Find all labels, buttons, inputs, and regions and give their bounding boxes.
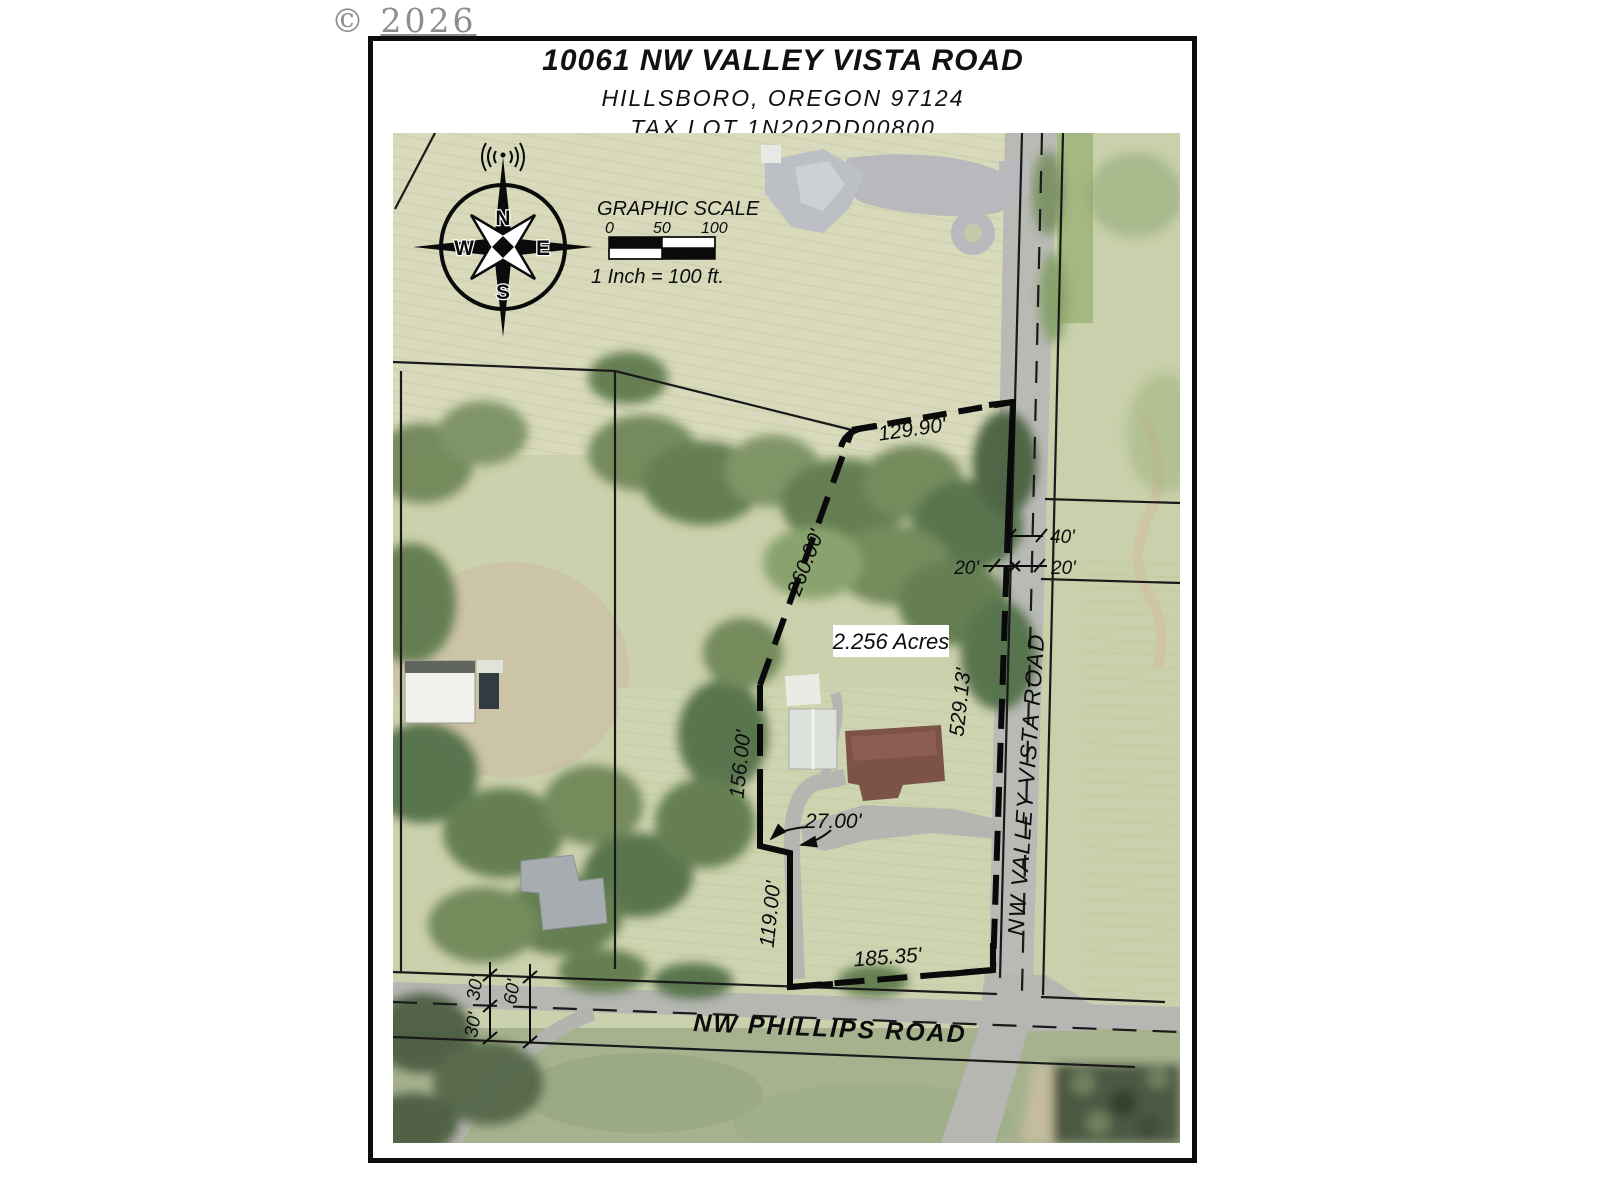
scale-bar-icon <box>609 237 715 259</box>
scale-tick-100: 100 <box>701 220 728 237</box>
copyright-watermark: © 2026 <box>331 1 476 40</box>
property-address: 10061 NW VALLEY VISTA ROAD <box>373 44 1193 78</box>
compass-west-label: W <box>454 237 474 260</box>
dim-south-label: 185.35' <box>853 944 924 972</box>
plat-map-page: © 2026 10061 NW VALLEY VISTA ROAD HILLSB… <box>0 0 1600 1200</box>
scale-caption: 1 Inch = 100 ft. <box>591 266 724 288</box>
dim-jog-label: 27.00' <box>804 810 863 833</box>
scale-tick-0: 0 <box>605 220 614 237</box>
aerial-plat-map: 129.90' 260.00' 529.13' 156.00' 27.00' 1… <box>393 133 1180 1143</box>
compass-south-label: S <box>496 281 510 304</box>
scale-title: GRAPHIC SCALE <box>597 198 760 220</box>
row-dim-30n-label: 30' <box>463 973 488 1002</box>
area-label: 2.256 Acres <box>832 629 950 654</box>
copyright-symbol: © <box>331 1 367 40</box>
title-block: 10061 NW VALLEY VISTA ROAD HILLSBORO, OR… <box>373 44 1193 142</box>
compass-east-label: E <box>536 237 550 260</box>
brush-patch <box>1021 1063 1180 1143</box>
scale-tick-50: 50 <box>653 220 671 237</box>
property-city: HILLSBORO, OREGON 97124 <box>373 85 1193 112</box>
row-dim-60-label: 60' <box>500 977 525 1006</box>
row-dim-40-label: 40' <box>1050 527 1076 548</box>
row-dim-20w-label: 20' <box>953 558 980 579</box>
compass-north-label: N <box>495 207 510 230</box>
row-dim-30s-label: 30' <box>461 1010 486 1039</box>
row-dim-20e-label: 20' <box>1050 558 1077 579</box>
copyright-year: 2026 <box>381 1 477 40</box>
